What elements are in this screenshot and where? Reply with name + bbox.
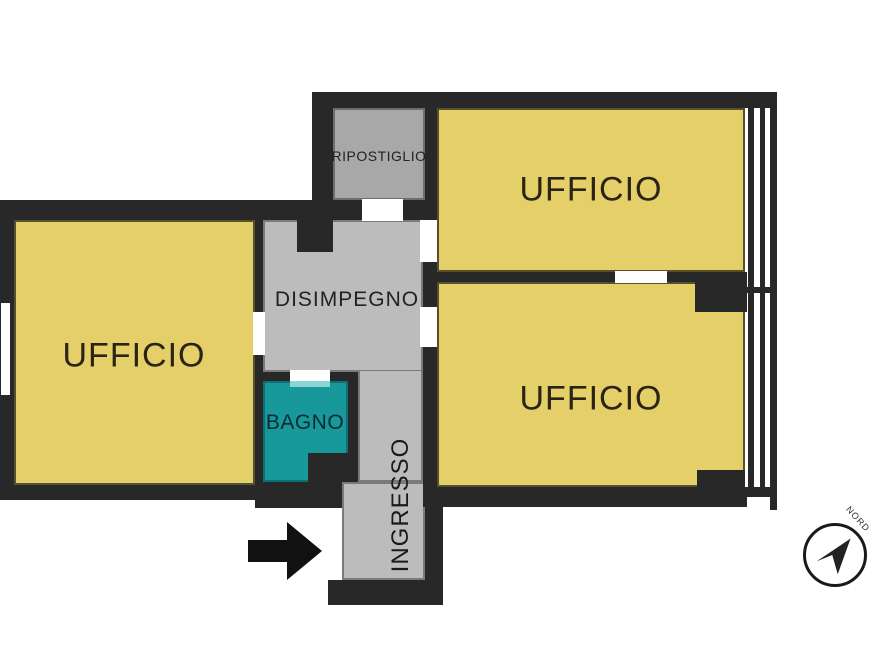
room-label-bagno: BAGNO: [266, 411, 344, 435]
wall-right-outer: [770, 92, 777, 510]
opening-ufficio-top: [420, 220, 437, 262]
door-ufficio-middle: [420, 307, 437, 347]
room-label-ufficio-top: UFFICIO: [520, 171, 663, 210]
wall-bagno-corner-block: [308, 453, 348, 482]
wall-pillar-top: [695, 272, 747, 312]
room-label-ufficio-left: UFFICIO: [63, 337, 206, 376]
room-label-disimpegno: DISIMPEGNO: [275, 288, 419, 312]
window-line-inner: [748, 108, 754, 488]
room-label-ufficio-middle: UFFICIO: [520, 380, 663, 419]
door-ufficio-left: [253, 312, 265, 355]
window-left: [1, 303, 10, 395]
door-between-uffici: [615, 271, 667, 283]
window-tick: [745, 287, 777, 293]
wall-bottom-middle: [423, 487, 747, 507]
wall-below-bagno: [255, 482, 342, 508]
bagno-door-threshold: [290, 381, 330, 387]
wall-between-uffici-1: [437, 272, 615, 282]
wall-topsection-left: [312, 92, 333, 203]
wall-top: [312, 92, 777, 108]
wall-ingresso-bottom: [328, 580, 443, 605]
compass: [803, 523, 867, 587]
window-line-middle: [760, 108, 765, 497]
room-label-ingresso: INGRESSO: [387, 438, 415, 573]
door-ripostiglio: [362, 199, 403, 221]
wall-bagno-top-right: [330, 372, 358, 381]
window-bottom-bar: [747, 487, 777, 497]
room-label-ripostiglio: RIPOSTIGLIO: [332, 148, 427, 164]
wall-step-block: [297, 220, 333, 252]
compass-needle-icon: [813, 533, 857, 577]
wall-left-bottom: [0, 485, 263, 500]
entrance-arrow-icon: [248, 522, 322, 580]
wall-bagno-right: [348, 381, 358, 482]
wall-corridor-right-lower: [423, 347, 437, 487]
wall-corridor-right-upper: [423, 262, 437, 307]
floor-plan: UFFICIO UFFICIO UFFICIO RIPOSTIGLIO DISI…: [0, 0, 893, 670]
wall-between-uffici-2: [667, 272, 695, 282]
wall-pillar-bottom: [697, 470, 745, 487]
wall-bagno-top-left: [263, 372, 290, 381]
door-bagno: [290, 370, 330, 381]
